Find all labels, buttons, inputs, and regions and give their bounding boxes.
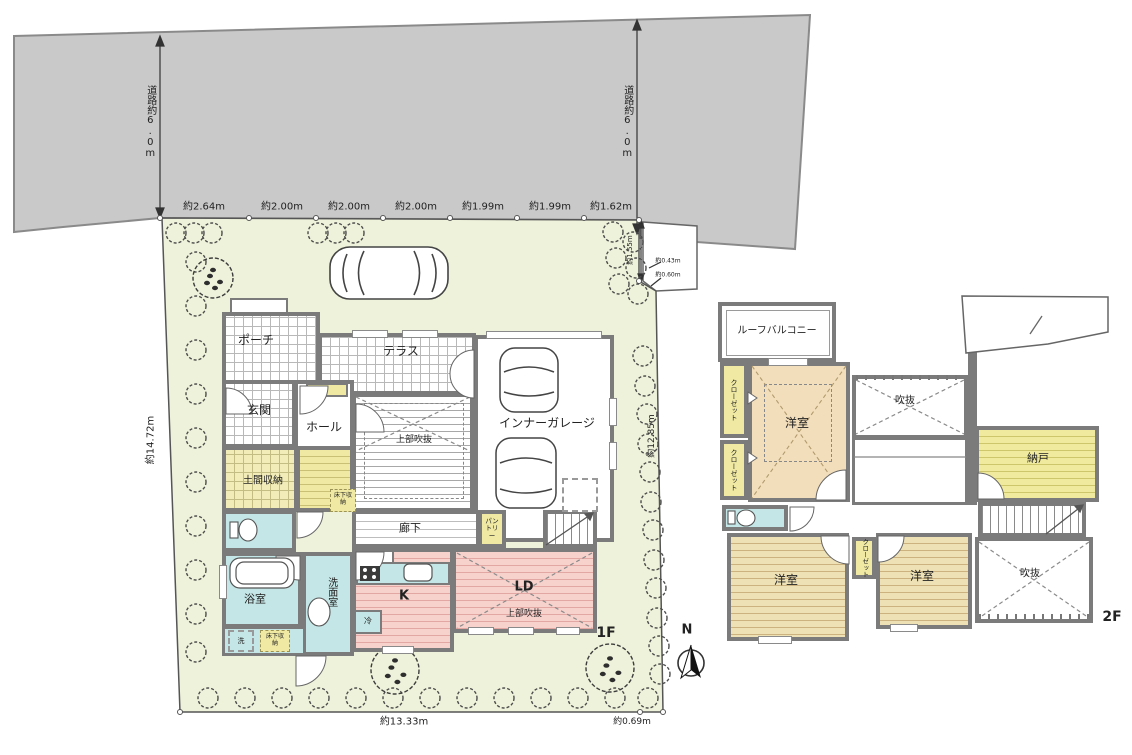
room-porch bbox=[222, 312, 320, 384]
garage-storage-dashed bbox=[562, 478, 598, 512]
right-dim: 約12.85m bbox=[647, 414, 657, 458]
top-dim-1: 約2.64m bbox=[183, 201, 225, 213]
label-underfloor-2: 床下収納 bbox=[264, 634, 286, 648]
top-dim-4: 約2.00m bbox=[395, 201, 437, 213]
room-toilet-1f bbox=[222, 510, 296, 552]
kitchen-counter bbox=[356, 562, 450, 585]
label-bedroom-2: 洋室 bbox=[774, 574, 798, 588]
porch-step bbox=[230, 298, 288, 314]
hall-2f bbox=[852, 437, 968, 505]
label-bedroom-3: 洋室 bbox=[910, 570, 934, 584]
bedroom3-window bbox=[890, 624, 918, 632]
label-upper-void-2: 上部吹抜 bbox=[506, 609, 542, 619]
label-terrace: テラス bbox=[383, 345, 419, 359]
label-porch: ポーチ bbox=[238, 334, 274, 348]
label-bedroom-1: 洋室 bbox=[785, 417, 809, 431]
wall-2f-center bbox=[968, 352, 977, 505]
room-bathroom bbox=[222, 552, 302, 628]
corridor-2f bbox=[788, 508, 978, 532]
garage-window-2 bbox=[609, 442, 617, 470]
top-dim-5: 約1.99m bbox=[462, 201, 504, 213]
label-kitchen: K bbox=[399, 590, 409, 605]
stairs-2f bbox=[978, 502, 1086, 537]
garage-window-1 bbox=[609, 398, 617, 426]
label-compass-north: N bbox=[682, 624, 693, 639]
label-washroom: 洗面室 bbox=[325, 577, 337, 607]
label-void-1: 吹抜 bbox=[895, 395, 915, 407]
road-area bbox=[14, 15, 810, 249]
corner-dim-b: 約0.60m bbox=[655, 273, 680, 280]
label-ld: LD bbox=[514, 581, 533, 596]
bath-window bbox=[219, 565, 227, 599]
center-void-dashed-rect bbox=[364, 403, 464, 499]
label-pantry: パントリー bbox=[484, 518, 500, 540]
room-void-2f-bottom bbox=[975, 537, 1093, 623]
shoe-cabinet bbox=[306, 383, 348, 397]
room-toilet-2f bbox=[722, 505, 788, 531]
label-bathroom: 浴室 bbox=[244, 594, 266, 607]
label-storeroom: 納戸 bbox=[1027, 453, 1049, 466]
top-dim-3: 約2.00m bbox=[328, 201, 370, 213]
bottom-dim-side: 約0.69m bbox=[613, 717, 651, 727]
left-dim: 約14.72m bbox=[145, 416, 157, 464]
bottom-dim-main: 約13.33m bbox=[380, 716, 428, 728]
garage-shutter bbox=[486, 331, 602, 339]
label-closet-2: クローゼット bbox=[730, 449, 738, 491]
label-washer: 洗 bbox=[238, 637, 245, 645]
top-dim-2: 約2.00m bbox=[261, 201, 303, 213]
floor-plan-page: 道路約6.0m 道路約6.0m 約2.64m 約2.00m 約2.00m 約2.… bbox=[0, 0, 1132, 755]
bedroom2-window bbox=[758, 636, 792, 644]
void-2-railing bbox=[979, 614, 1089, 619]
label-closet-3: クローゼット bbox=[860, 539, 867, 578]
kitchen-window bbox=[382, 646, 414, 654]
label-roof-balcony: ルーフバルコニー bbox=[737, 325, 816, 337]
label-hall: ホール bbox=[306, 421, 342, 435]
label-doma: 土間収納 bbox=[243, 475, 283, 487]
road-dimension-lines bbox=[156, 20, 661, 286]
top-dim-6: 約1.99m bbox=[529, 201, 571, 213]
label-entrance: 玄関 bbox=[247, 404, 271, 418]
compass-icon bbox=[678, 645, 704, 678]
label-void-2: 吹抜 bbox=[1020, 568, 1040, 580]
label-garage: インナーガレージ bbox=[499, 417, 595, 431]
corner-dim-a: 約0.43m bbox=[655, 259, 680, 266]
ld-window-1 bbox=[468, 627, 494, 635]
road-dim-left: 道路約6.0m bbox=[144, 85, 156, 159]
car-icon-site bbox=[330, 247, 448, 299]
void-1-railing bbox=[856, 375, 964, 380]
corner-cut-area bbox=[643, 222, 697, 291]
bedroom1-window bbox=[768, 358, 808, 366]
terrace-window-1 bbox=[352, 330, 388, 338]
label-upper-void-1: 上部吹抜 bbox=[396, 435, 432, 445]
label-underfloor-1: 床下収納 bbox=[332, 493, 354, 507]
ld-window-2 bbox=[508, 627, 534, 635]
label-2f: 2F bbox=[1102, 609, 1121, 625]
corner-dim-v: 約1.55m bbox=[626, 235, 634, 264]
label-corridor: 廊下 bbox=[399, 523, 421, 536]
road-dim-right: 道路約6.0m bbox=[621, 85, 633, 159]
terrace-window-2 bbox=[402, 330, 438, 338]
label-1f: 1F bbox=[596, 625, 615, 641]
label-closet-1: クローゼット bbox=[730, 379, 738, 421]
ld-window-3 bbox=[556, 627, 580, 635]
room-void-2f-top bbox=[852, 375, 968, 439]
label-fridge: 冷 bbox=[364, 616, 372, 625]
roof-below-area bbox=[962, 296, 1108, 353]
stairs-1f bbox=[543, 510, 597, 548]
top-dim-7: 約1.62m bbox=[590, 201, 632, 213]
